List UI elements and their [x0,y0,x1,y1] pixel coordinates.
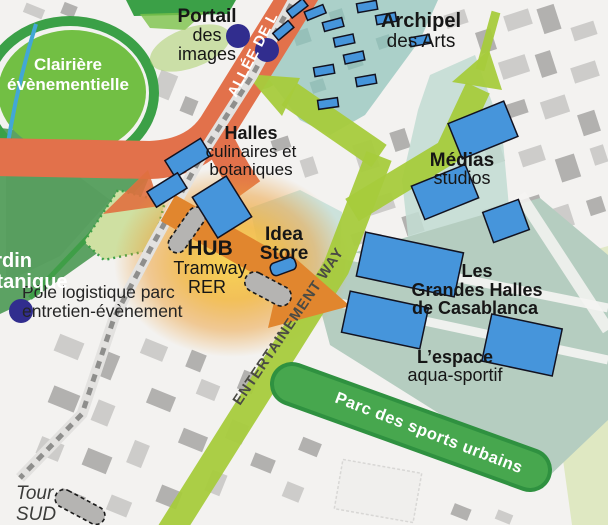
label-idea-store: Store [260,243,309,264]
label-tour-sud: Tour [16,483,54,504]
label-halles: botaniques [209,160,292,179]
label-portail: Portail [177,6,236,27]
label-tour-sud: SUD [16,504,56,525]
label-medias: studios [433,168,490,188]
label-pole-logistique: entretien-évènement [22,301,183,321]
label-archipel: Archipel [381,10,461,32]
archipel-pavilion [318,98,339,110]
map-canvas: Portail des images Archipel des Arts Cla… [0,0,608,525]
masterplan-map: Portail des images Archipel des Arts Cla… [0,0,608,525]
label-portail: images [178,44,236,64]
label-espace-aqua: aqua-sportif [407,365,503,385]
label-clairiere: Clairière [34,55,102,74]
label-grandes-halles: Les [461,261,492,281]
label-grandes-halles: Grandes Halles [411,280,542,300]
label-espace-aqua: L’espace [417,347,493,367]
label-hub: Tramway [173,258,246,278]
label-halles: Halles [224,123,277,143]
label-hub: RER [188,277,226,297]
label-portail: des [192,25,221,45]
label-halles: culinaires et [206,142,297,161]
label-idea-store: Idea [265,224,303,245]
label-hub: HUB [187,237,233,260]
label-clairiere: évènementielle [7,75,129,94]
label-jardin: Jardin [0,250,32,272]
label-jardin: botanique [0,271,68,293]
label-archipel: des Arts [387,31,456,52]
label-grandes-halles: de Casablanca [412,298,539,318]
